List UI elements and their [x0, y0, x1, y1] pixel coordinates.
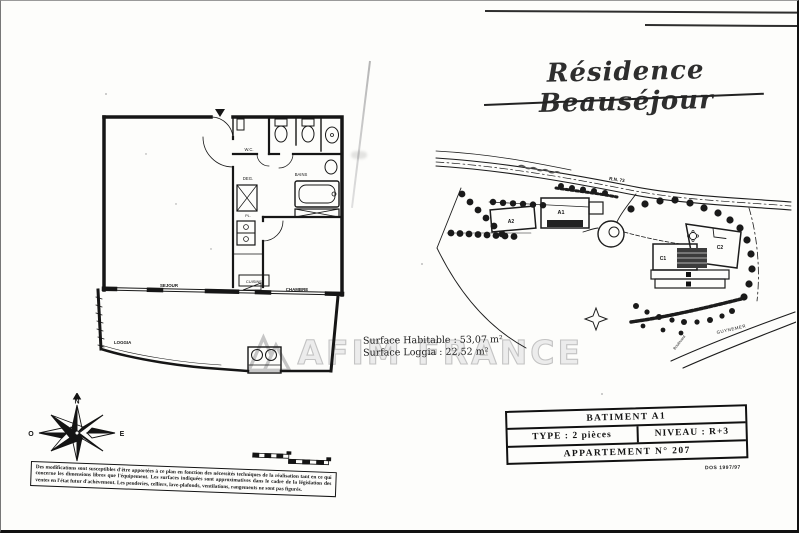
- scale-bar: [250, 450, 346, 469]
- speck: [601, 393, 603, 395]
- site-star-icon: [585, 308, 607, 330]
- apartment-info-table: BATIMENT A1 TYPE : 2 pièces NIVEAU : R+3…: [505, 404, 748, 465]
- building-label-a1: A1: [558, 210, 565, 216]
- floor-plan: W.C. BAINS DEG. PL. CUISINE SEJOUR CHAMB…: [91, 109, 351, 384]
- info-niveau: NIVEAU : R+3: [638, 423, 746, 442]
- room-label-sejour: SEJOUR: [160, 283, 179, 288]
- building-label-c2: C2: [717, 245, 724, 251]
- building-label-c1: C1: [660, 256, 667, 262]
- room-label-pl: PL.: [245, 214, 251, 218]
- scan-line-top: [485, 10, 797, 14]
- page-title: Résidence Beauséjour: [482, 54, 769, 120]
- room-label-deg: DEG.: [243, 176, 253, 181]
- compass-e-label: E: [120, 431, 125, 438]
- room-label-wc: W.C.: [244, 147, 253, 152]
- speck: [105, 93, 107, 95]
- room-label-chambre: CHAMBRE: [286, 287, 309, 292]
- surface-loggia: Surface Loggia : 22,52 m²: [363, 346, 503, 359]
- scan-line-top-2: [645, 24, 797, 27]
- room-label-cuisine: CUISINE: [246, 279, 263, 284]
- surface-info: Surface Habitable : 53,07 m² Surface Log…: [363, 334, 503, 359]
- building-label-a2: A2: [508, 219, 515, 225]
- pencil-smudge: [351, 151, 367, 159]
- room-label-bains: BAINS: [295, 172, 308, 177]
- entry-arrow-icon: [215, 109, 225, 117]
- road-label-boulevard: Boulevard: [673, 335, 687, 351]
- road-label-guynemer: GUYNEMER: [716, 323, 747, 335]
- compass-o-label: O: [28, 431, 34, 438]
- speck: [421, 263, 423, 265]
- compass-n-label: N: [74, 399, 79, 406]
- info-type: TYPE : 2 pièces: [508, 426, 639, 446]
- document-ref: DOS 1997/97: [705, 465, 741, 472]
- room-label-loggia: LOGGIA: [114, 340, 132, 345]
- scanned-plan-page: Résidence Beauséjour AFIM FRANCE Surface…: [0, 0, 799, 533]
- fold-line: [351, 61, 371, 208]
